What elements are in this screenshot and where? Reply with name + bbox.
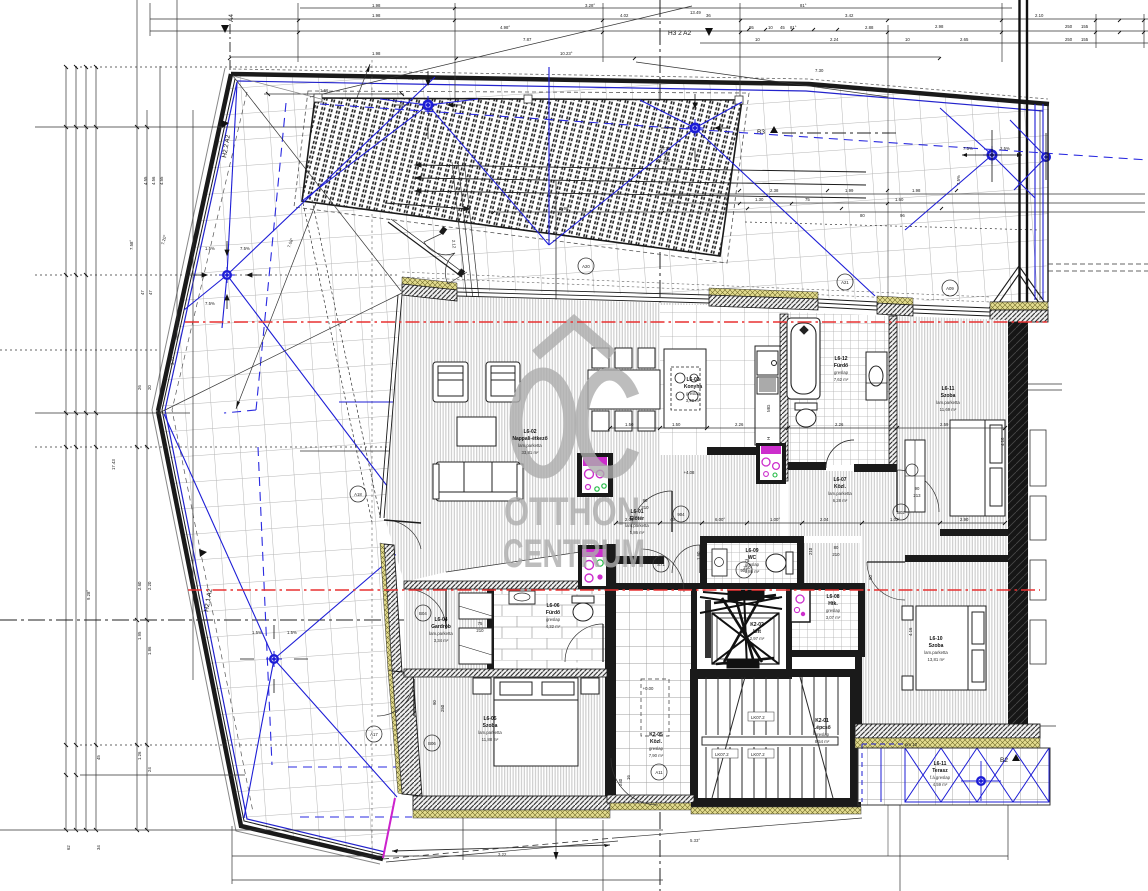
svg-text:24: 24: [147, 767, 152, 772]
svg-text:lam.parketta: lam.parketta: [429, 631, 453, 636]
svg-text:L6-11: L6-11: [942, 386, 955, 392]
svg-text:L6-05: L6-05: [483, 716, 496, 722]
svg-text:1.50: 1.50: [625, 422, 634, 427]
svg-text:4,32 m²: 4,32 m²: [546, 624, 561, 629]
svg-text:lam.parketta: lam.parketta: [478, 730, 502, 735]
svg-text:LK07.2: LK07.2: [715, 752, 729, 757]
svg-text:7.5%: 7.5%: [205, 301, 215, 306]
svg-text:10.23°: 10.23°: [560, 51, 573, 56]
svg-text:4.56: 4.56: [151, 176, 156, 185]
svg-text:1.5%: 1.5%: [287, 630, 297, 635]
svg-text:3,98 m²: 3,98 m²: [686, 398, 701, 403]
svg-text:3.42: 3.42: [845, 13, 854, 18]
svg-text:3.72°: 3.72°: [170, 355, 175, 365]
svg-text:3,07 m²: 3,07 m²: [826, 615, 841, 620]
svg-text:greslap: greslap: [546, 617, 561, 622]
svg-text:90: 90: [610, 777, 615, 782]
svg-text:S71: S71: [657, 562, 665, 567]
svg-text:Szoba: Szoba: [483, 723, 498, 729]
svg-text:L6-12: L6-12: [834, 356, 847, 362]
svg-text:1.98: 1.98: [372, 51, 381, 56]
svg-text:80: 80: [834, 545, 839, 550]
svg-text:H3 2 A2: H3 2 A2: [668, 30, 692, 37]
svg-text:1.5%: 1.5%: [205, 246, 215, 251]
svg-text:greslap: greslap: [686, 391, 701, 396]
svg-text:B02: B02: [897, 510, 905, 515]
svg-text:2.5%: 2.5%: [1000, 146, 1010, 151]
svg-text:11,69 m²: 11,69 m²: [940, 407, 957, 412]
svg-text:250: 250: [1065, 37, 1073, 42]
svg-text:213: 213: [913, 493, 921, 498]
svg-text:2.04: 2.04: [820, 517, 829, 522]
svg-text:+4.08: +4.08: [684, 470, 695, 475]
svg-text:pm 10: pm 10: [905, 742, 918, 747]
svg-text:75: 75: [805, 197, 810, 202]
svg-text:210: 210: [641, 505, 649, 510]
svg-text:75: 75: [745, 558, 750, 563]
svg-text:1.66: 1.66: [320, 88, 329, 93]
svg-text:45: 45: [670, 517, 675, 522]
svg-text:210: 210: [476, 628, 484, 633]
svg-text:16: 16: [626, 775, 631, 780]
svg-text:4.55: 4.55: [159, 176, 164, 185]
svg-text:62: 62: [66, 845, 71, 850]
svg-text:90: 90: [915, 486, 920, 491]
svg-text:20: 20: [147, 385, 152, 390]
svg-text:1.95: 1.95: [137, 631, 142, 640]
svg-text:3.22: 3.22: [498, 852, 507, 857]
svg-text:A17: A17: [370, 732, 378, 737]
svg-text:K2-02: K2-02: [750, 622, 764, 628]
svg-text:Terasz: Terasz: [932, 768, 948, 774]
svg-text:1.99: 1.99: [845, 188, 854, 193]
svg-text:L6-09: L6-09: [745, 548, 758, 554]
svg-text:11,88 m²: 11,88 m²: [482, 737, 499, 742]
svg-text:Htk.: Htk.: [828, 601, 838, 607]
svg-text:1.50: 1.50: [672, 422, 681, 427]
svg-text:L6-06: L6-06: [546, 603, 559, 609]
svg-text:greslap: greslap: [834, 370, 849, 375]
svg-text:lam.parketta: lam.parketta: [924, 650, 948, 655]
svg-text:3,34 m²: 3,34 m²: [434, 638, 449, 643]
svg-text:6.00°: 6.00°: [715, 517, 725, 522]
svg-text:LK07.2: LK07.2: [751, 752, 765, 757]
svg-text:1.98: 1.98: [912, 188, 921, 193]
svg-text:Fürdő: Fürdő: [834, 363, 848, 369]
svg-text:34: 34: [96, 845, 101, 850]
svg-text:B3: B3: [757, 129, 765, 136]
svg-text:greslap: greslap: [649, 746, 664, 751]
svg-text:A20: A20: [582, 264, 590, 269]
svg-text:1.30: 1.30: [755, 197, 764, 202]
svg-text:OTTHON: OTTHON: [504, 490, 640, 534]
svg-text:2.98: 2.98: [560, 206, 569, 211]
svg-text:1.98: 1.98: [372, 13, 381, 18]
svg-text:7.5%: 7.5%: [963, 146, 973, 151]
svg-text:7.5%: 7.5%: [956, 175, 961, 185]
svg-text:L6-07: L6-07: [833, 477, 846, 483]
svg-text:1.86: 1.86: [147, 646, 152, 655]
svg-text:Nappali-étkező: Nappali-étkező: [512, 436, 547, 442]
svg-text:90: 90: [868, 575, 873, 580]
svg-text:Közl.: Közl.: [834, 484, 847, 490]
svg-text:lam.parketta: lam.parketta: [936, 400, 960, 405]
svg-text:36: 36: [706, 13, 711, 18]
svg-text:7.5%: 7.5%: [240, 246, 250, 251]
svg-text:B06: B06: [428, 741, 436, 746]
svg-text:45: 45: [96, 755, 101, 760]
svg-text:6,28 m²: 6,28 m²: [833, 498, 848, 503]
svg-text:L6-02: L6-02: [523, 429, 536, 435]
svg-text:4.16: 4.16: [908, 627, 913, 636]
svg-text:7.87: 7.87: [523, 37, 532, 42]
svg-text:4,59 m²: 4,59 m²: [933, 782, 948, 787]
svg-text:2.60: 2.60: [137, 581, 142, 590]
svg-text:LK07.2: LK07.2: [751, 715, 765, 720]
svg-text:K2-01: K2-01: [815, 718, 829, 724]
svg-text:90: 90: [643, 498, 648, 503]
svg-text:2.65: 2.65: [960, 37, 969, 42]
svg-text:9.28°: 9.28°: [86, 590, 91, 600]
svg-text:Lift: Lift: [753, 629, 761, 635]
svg-text:+0.00: +0.00: [643, 686, 654, 691]
svg-text:B04: B04: [419, 611, 427, 616]
svg-text:2.59: 2.59: [940, 422, 949, 427]
svg-text:4.55: 4.55: [143, 176, 148, 185]
svg-text:7.30: 7.30: [815, 68, 824, 73]
svg-text:L6-04: L6-04: [434, 617, 447, 623]
svg-text:155: 155: [1081, 24, 1089, 29]
svg-text:Konyha: Konyha: [684, 384, 703, 390]
svg-text:26: 26: [137, 385, 142, 390]
svg-text:1.60: 1.60: [696, 551, 701, 560]
svg-text:2.98: 2.98: [935, 24, 944, 29]
svg-text:75: 75: [478, 621, 483, 626]
svg-text:2.20: 2.20: [147, 581, 152, 590]
svg-text:A11: A11: [655, 770, 663, 775]
svg-text:K2-05: K2-05: [649, 732, 663, 738]
svg-text:Szoba: Szoba: [941, 393, 956, 399]
svg-text:13.49: 13.49: [690, 10, 701, 15]
svg-text:33,81 m²: 33,81 m²: [522, 450, 540, 455]
svg-text:greslap: greslap: [826, 608, 841, 613]
svg-text:4.16: 4.16: [1000, 437, 1005, 446]
svg-text:B2: B2: [1000, 757, 1008, 764]
svg-text:Fürdő: Fürdő: [546, 610, 560, 616]
svg-text:A21: A21: [841, 280, 849, 285]
svg-text:95: 95: [749, 25, 754, 30]
svg-text:3.28°: 3.28°: [585, 3, 595, 8]
svg-text:45.788: 45.788: [657, 158, 671, 163]
svg-text:17.43: 17.43: [111, 459, 116, 470]
svg-text:7,90 m²: 7,90 m²: [649, 753, 664, 758]
svg-text:45: 45: [780, 25, 785, 30]
svg-text:4.98°: 4.98°: [500, 25, 510, 30]
svg-text:greslap: greslap: [815, 732, 830, 737]
svg-text:7.58°: 7.58°: [129, 240, 134, 250]
svg-text:4.02: 4.02: [620, 13, 629, 18]
svg-text:MG: MG: [766, 404, 771, 412]
svg-text:A4: A4: [228, 14, 235, 22]
svg-text:1.60: 1.60: [895, 197, 904, 202]
svg-text:1.5%: 1.5%: [252, 630, 262, 635]
svg-text:2.04: 2.04: [625, 517, 634, 522]
svg-text:lam.parketta: lam.parketta: [828, 491, 852, 496]
svg-text:81°: 81°: [790, 25, 797, 30]
svg-text:7,62 m²: 7,62 m²: [834, 377, 849, 382]
svg-text:1.26: 1.26: [137, 751, 142, 760]
svg-text:2.10: 2.10: [1035, 13, 1044, 18]
svg-text:CENTRUM: CENTRUM: [503, 532, 645, 576]
svg-text:1.00°: 1.00°: [770, 517, 780, 522]
svg-text:250: 250: [1065, 24, 1073, 29]
svg-text:L6-11: L6-11: [934, 761, 947, 767]
svg-text:2.38: 2.38: [770, 188, 779, 193]
svg-text:10: 10: [905, 37, 910, 42]
svg-text:5,86 m²: 5,86 m²: [630, 530, 645, 535]
svg-text:Szoba: Szoba: [929, 643, 944, 649]
svg-text:2.24: 2.24: [830, 37, 839, 42]
svg-text:Gardrób: Gardrób: [431, 624, 451, 630]
svg-text:210: 210: [808, 547, 813, 555]
svg-text:lam.parketta: lam.parketta: [518, 443, 542, 448]
svg-text:90: 90: [432, 700, 437, 705]
svg-text:5.33°: 5.33°: [690, 838, 700, 843]
svg-text:A18: A18: [354, 492, 362, 497]
svg-text:Közl.: Közl.: [650, 739, 663, 745]
svg-text:13,81 m²: 13,81 m²: [928, 657, 946, 662]
svg-text:47: 47: [140, 290, 145, 295]
svg-text:L6-10: L6-10: [929, 636, 942, 642]
svg-text:210: 210: [832, 552, 840, 557]
svg-text:2.26: 2.26: [735, 422, 744, 427]
svg-text:155: 155: [1081, 37, 1089, 42]
svg-text:8,54 m²: 8,54 m²: [815, 739, 830, 744]
svg-text:1.02°: 1.02°: [890, 517, 900, 522]
svg-text:7.5%: 7.5%: [408, 76, 418, 81]
svg-text:H: H: [766, 437, 771, 440]
svg-text:f.á.greslap: f.á.greslap: [930, 775, 951, 780]
svg-text:10: 10: [755, 37, 760, 42]
svg-text:210: 210: [743, 565, 751, 570]
svg-text:96: 96: [900, 213, 905, 218]
svg-text:L6-08: L6-08: [826, 594, 839, 600]
svg-text:A09: A09: [946, 286, 954, 291]
svg-text:Lépcső: Lépcső: [813, 725, 831, 731]
svg-text:2.12: 2.12: [451, 240, 457, 249]
svg-text:904: 904: [677, 512, 685, 517]
svg-text:L6-03: L6-03: [686, 377, 699, 383]
svg-text:81°: 81°: [800, 3, 807, 8]
svg-text:2.90: 2.90: [960, 517, 969, 522]
svg-text:240: 240: [618, 778, 623, 786]
svg-text:250: 250: [440, 704, 445, 712]
svg-text:1.98: 1.98: [372, 3, 381, 8]
svg-text:10: 10: [768, 25, 773, 30]
svg-text:47: 47: [148, 290, 153, 295]
svg-text:2,97 m²: 2,97 m²: [750, 636, 765, 641]
svg-text:80: 80: [860, 213, 865, 218]
svg-text:2.26: 2.26: [835, 422, 844, 427]
svg-text:lam.parketta: lam.parketta: [625, 523, 649, 528]
svg-text:2.88: 2.88: [865, 25, 874, 30]
